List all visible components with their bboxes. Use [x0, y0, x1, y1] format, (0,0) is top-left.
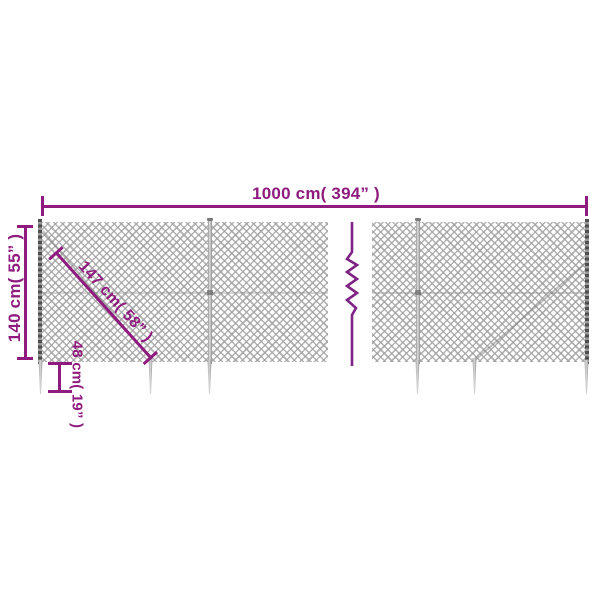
- dimension-end-cap: [585, 196, 588, 216]
- end-post-right: [585, 219, 589, 364]
- ground-spike: [472, 358, 477, 394]
- ground-spike: [148, 358, 153, 394]
- fence-height-label: 140 cm( 55” ): [5, 208, 25, 368]
- ground-spike: [584, 360, 589, 394]
- dimension-line: [58, 363, 61, 393]
- line-post-2: [416, 218, 420, 364]
- tension-wire-right: [372, 292, 588, 294]
- line-post-1: [208, 218, 212, 364]
- ground-spike: [38, 360, 43, 394]
- ground-spike: [415, 360, 420, 394]
- fence-dimension-diagram: 1000 cm( 394” ) 140 cm( 55” ) 147 cm( 58…: [0, 0, 600, 600]
- length-break-squiggle-icon: [344, 220, 360, 370]
- dimension-line: [42, 205, 587, 208]
- ground-spike: [207, 360, 212, 394]
- anchor-spike-length-label: 48 cm( 19” ): [69, 315, 86, 455]
- tension-wire-left: [40, 292, 328, 294]
- dimension-end-cap: [41, 196, 44, 216]
- total-width-label: 1000 cm( 394” ): [166, 184, 466, 204]
- end-post-left: [38, 219, 42, 364]
